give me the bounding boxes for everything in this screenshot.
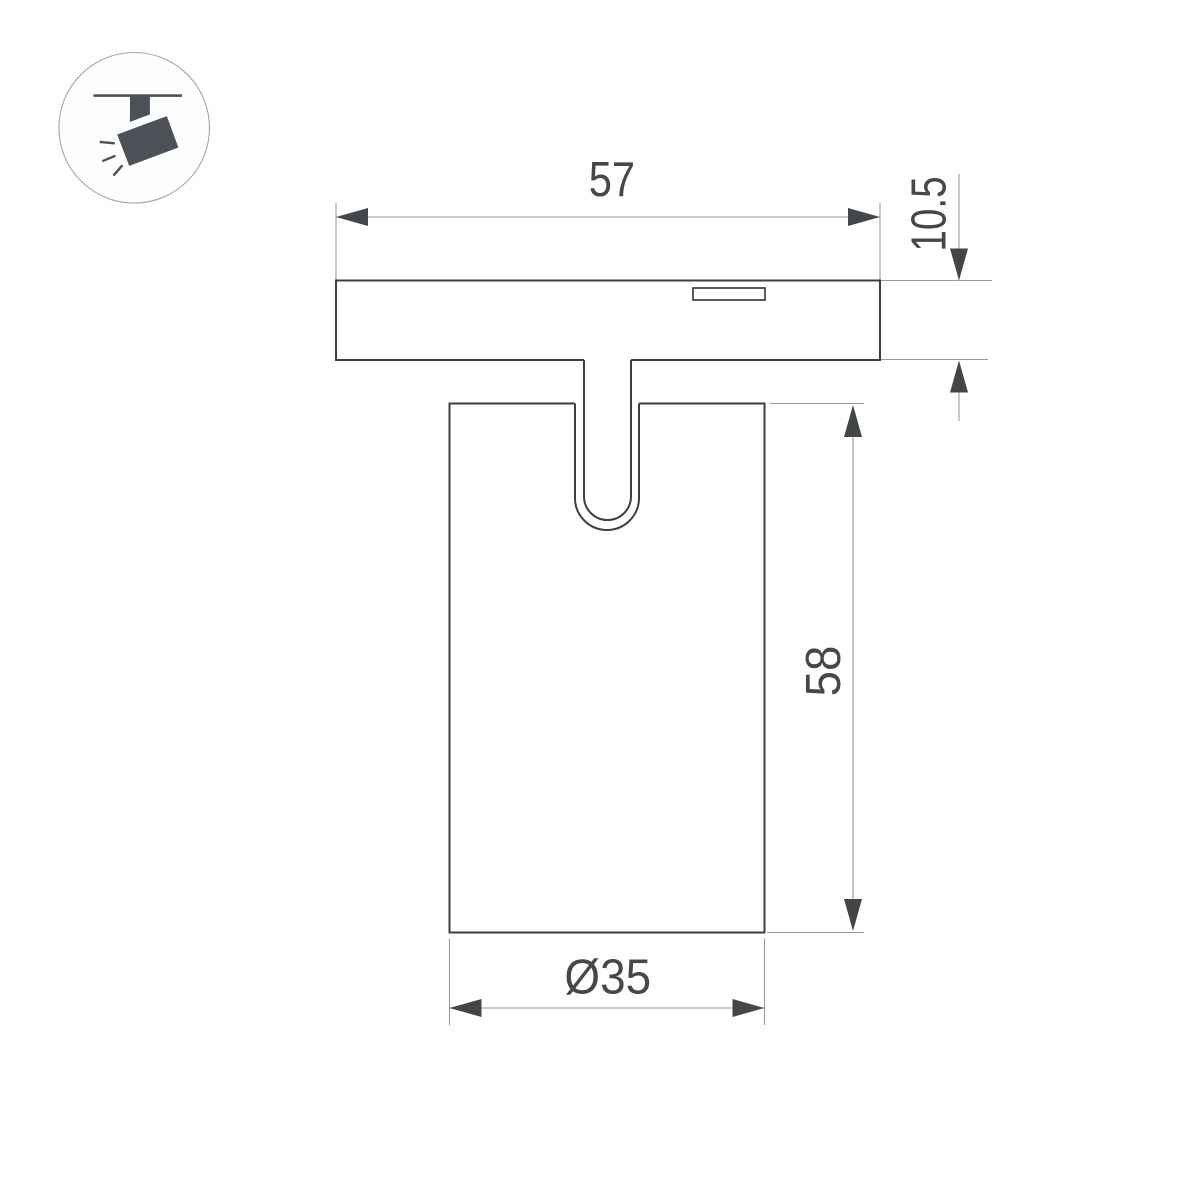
svg-text:57: 57 xyxy=(589,152,635,207)
svg-text:58: 58 xyxy=(797,646,852,697)
svg-text:Ø35: Ø35 xyxy=(564,950,651,1005)
svg-text:10.5: 10.5 xyxy=(902,176,956,251)
